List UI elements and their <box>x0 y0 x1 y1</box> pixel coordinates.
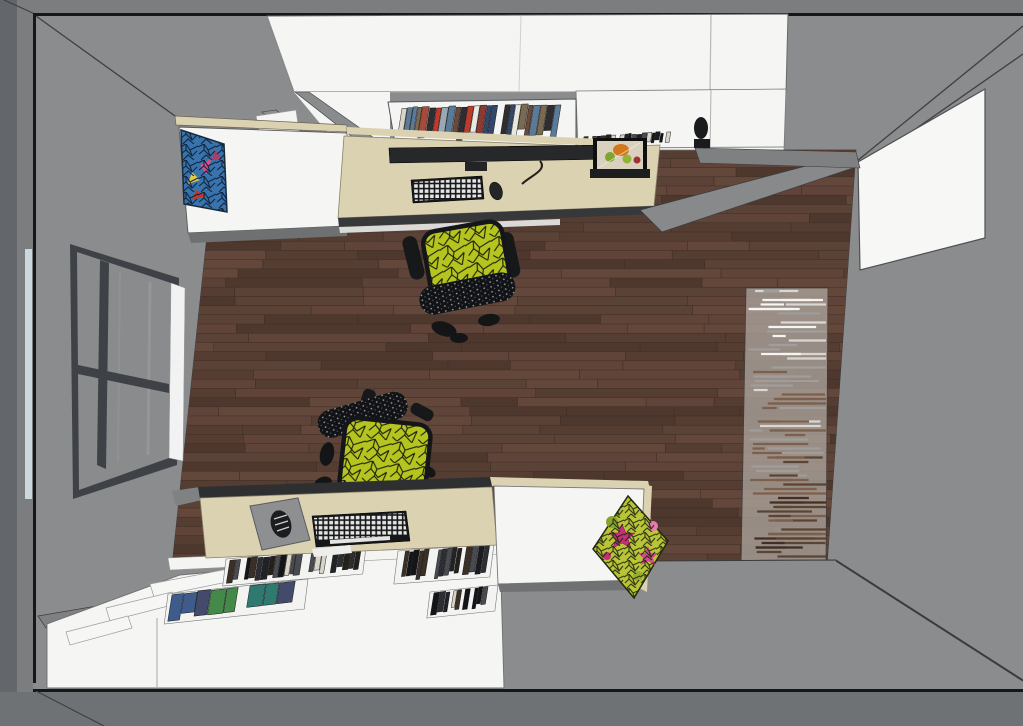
window <box>70 244 185 499</box>
books-row-right-1 <box>394 544 494 584</box>
upper-keyboard <box>411 176 484 203</box>
bottom-black-line <box>33 689 1023 692</box>
keyboard-keys <box>413 178 482 201</box>
area-rug <box>741 288 828 566</box>
fruit-still-life-art <box>590 138 650 178</box>
glass-streak-2 <box>148 282 150 455</box>
chair1-wheel-3 <box>450 333 468 343</box>
scene-svg <box>0 0 1023 726</box>
blue-patterned-pillow <box>181 130 227 212</box>
lower-desk <box>172 477 497 558</box>
lower-keyboard <box>312 511 410 547</box>
art-fruit-red <box>634 157 641 164</box>
bottom-outside <box>0 692 1023 726</box>
window-sill <box>169 283 185 461</box>
render-viewport <box>0 0 1023 726</box>
window-glass-reflection <box>25 249 32 499</box>
art-stand <box>590 169 650 178</box>
art-apple-2 <box>623 155 632 164</box>
monitor-stand <box>465 162 487 171</box>
left-edge-strip <box>0 0 17 726</box>
